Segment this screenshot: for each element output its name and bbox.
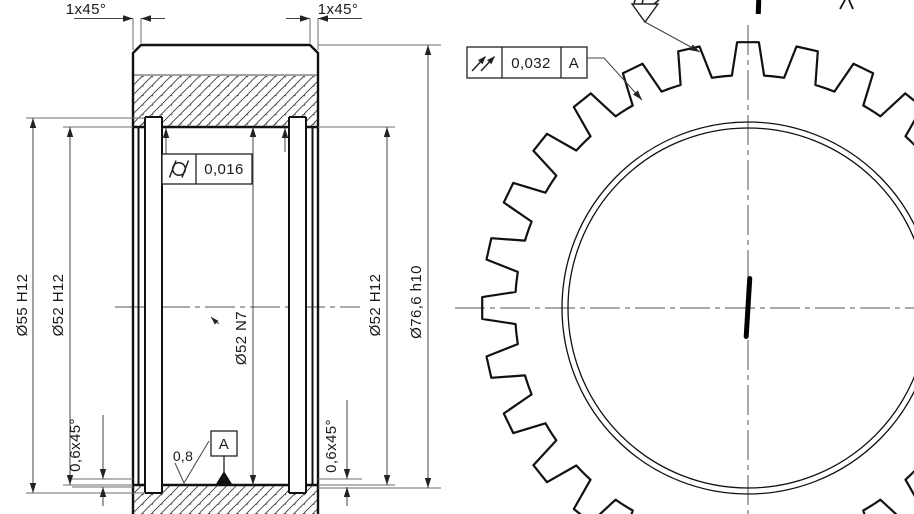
gear-view: 0,032 A — [455, 0, 914, 514]
dim-label-outer-diameter: Ø76,6 h10 — [408, 265, 425, 339]
center-mark — [744, 276, 753, 339]
groove-slot-left — [145, 117, 162, 493]
roughness-value: 0,8 — [173, 448, 193, 464]
small-leader-arrow — [209, 315, 218, 324]
gear-teeth — [482, 42, 914, 514]
drawing-canvas: 1x45° 1x45° Ø55 H12 Ø52 H12 Ø52 N7 Ø52 H… — [0, 0, 914, 514]
tolerance-frame-runout: 0,032 A — [467, 47, 644, 102]
cylindricity-value: 0,016 — [204, 161, 244, 178]
partial-section-mark — [756, 0, 761, 14]
dim-label-bore-center: Ø52 N7 — [233, 311, 250, 365]
runout-value: 0,032 — [511, 55, 551, 72]
partial-roughness-symbol — [632, 0, 702, 55]
datum-triangle-icon — [216, 471, 232, 484]
datum-feature: A — [211, 431, 237, 484]
dim-label-groove-right: Ø52 H12 — [367, 274, 384, 337]
section-view: 1x45° 1x45° Ø55 H12 Ø52 H12 Ø52 N7 Ø52 H… — [14, 1, 441, 514]
datum-label: A — [219, 436, 229, 453]
dim-label-groove-outer: Ø55 H12 — [14, 274, 31, 337]
roughness-symbol: 0,8 — [173, 441, 209, 483]
chamfer-label-top-right: 1x45° — [318, 1, 359, 18]
runout-datum: A — [569, 55, 579, 72]
partial-letter-a — [840, 0, 853, 9]
chamfer-label-bottom-left: 0,6x45° — [67, 418, 84, 472]
tolerance-frame-cylindricity: 0,016 — [162, 154, 252, 184]
technical-drawing: 1x45° 1x45° Ø55 H12 Ø52 H12 Ø52 N7 Ø52 H… — [0, 0, 914, 514]
chamfer-label-bottom-right: 0,6x45° — [323, 419, 340, 473]
dim-label-groove-left: Ø52 H12 — [50, 274, 67, 337]
groove-slot-right — [289, 117, 306, 493]
chamfer-label-top-left: 1x45° — [66, 1, 107, 18]
